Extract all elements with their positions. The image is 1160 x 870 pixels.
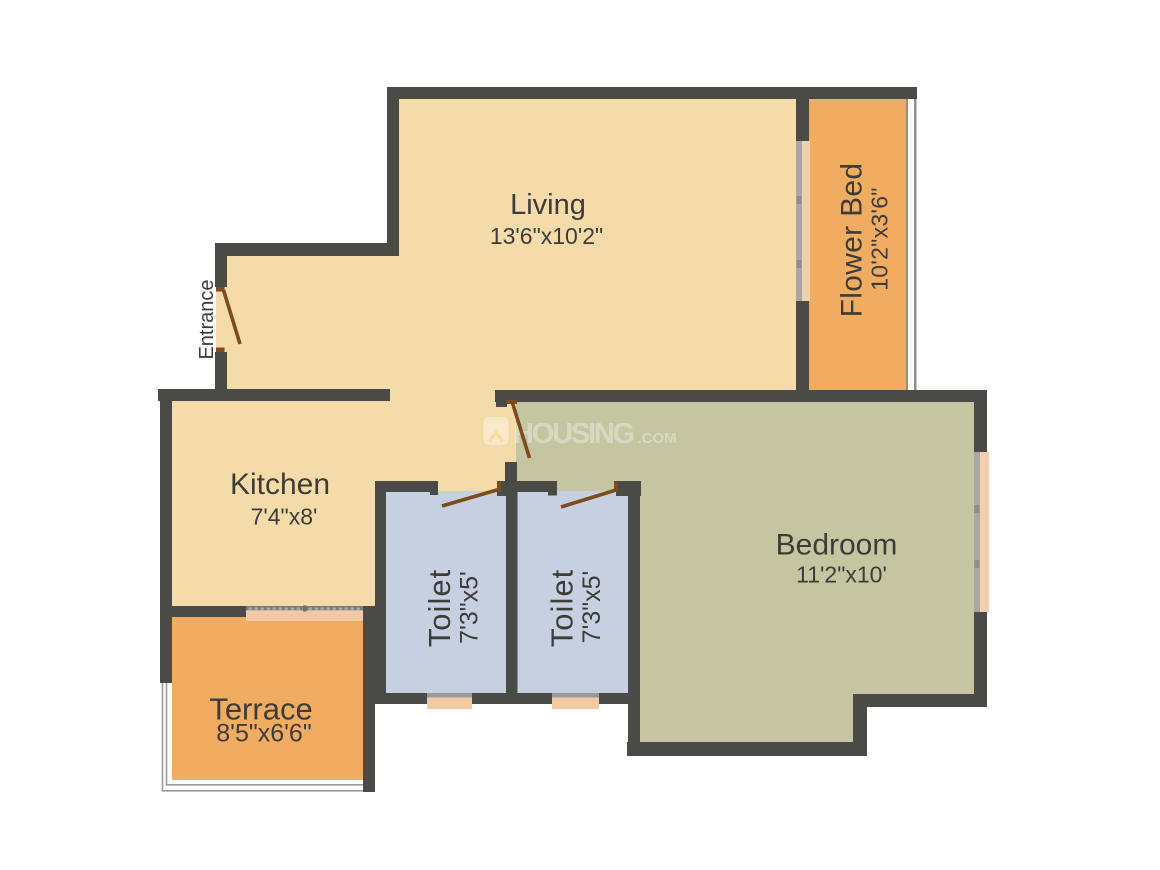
svg-text:HOUSING: HOUSING <box>513 418 634 450</box>
svg-text:Toilet: Toilet <box>545 569 580 647</box>
svg-text:Flower Bed: Flower Bed <box>836 163 869 318</box>
svg-text:Entrance: Entrance <box>196 279 218 359</box>
svg-text:Kitchen: Kitchen <box>230 468 330 501</box>
svg-text:8'5"x6'6": 8'5"x6'6" <box>216 720 311 748</box>
svg-text:7'3"x5': 7'3"x5' <box>578 571 606 644</box>
svg-text:10'2"x3'6": 10'2"x3'6" <box>867 187 893 291</box>
svg-text:7'4"x8': 7'4"x8' <box>251 504 318 530</box>
svg-text:11'2"x10': 11'2"x10' <box>796 562 887 588</box>
svg-text:Toilet: Toilet <box>422 569 457 647</box>
svg-text:.COM: .COM <box>638 430 677 447</box>
svg-text:Bedroom: Bedroom <box>776 529 898 562</box>
svg-text:7'3"x5': 7'3"x5' <box>456 571 484 644</box>
svg-text:Living: Living <box>510 189 586 221</box>
svg-text:13'6"x10'2": 13'6"x10'2" <box>490 223 603 249</box>
